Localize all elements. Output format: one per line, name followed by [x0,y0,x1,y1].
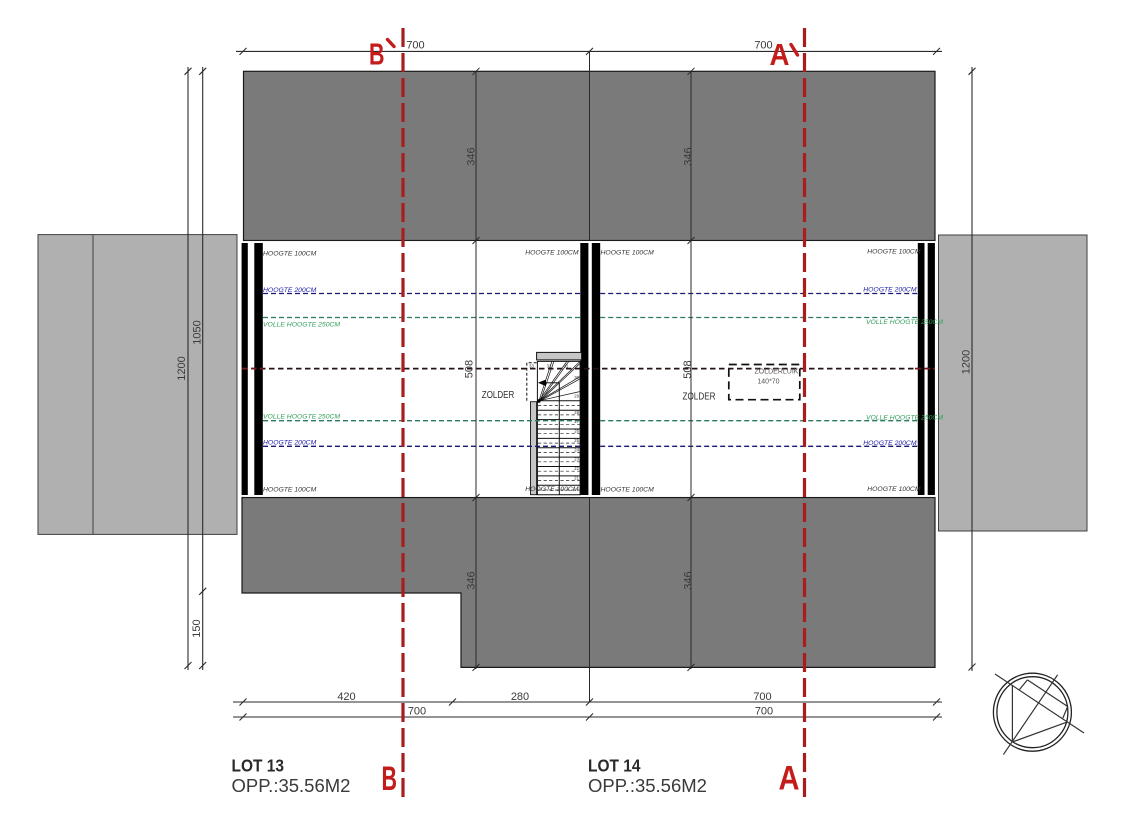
svg-text:ZOLDER: ZOLDER [683,392,716,403]
svg-text:140*70: 140*70 [757,378,779,385]
svg-text:B: B [369,37,385,72]
svg-text:21: 21 [574,476,579,481]
svg-text:A: A [770,37,790,72]
svg-text:HOOGTE 100CM: HOOGTE 100CM [525,486,579,493]
svg-text:346: 346 [682,147,694,165]
svg-text:700: 700 [406,40,424,52]
svg-text:HOOGTE 100CM: HOOGTE 100CM [525,250,579,257]
svg-text:HOOGTE 200CM: HOOGTE 200CM [263,439,317,446]
svg-text:HOOGTE 100CM: HOOGTE 100CM [601,487,655,494]
svg-text:HOOGTE 200CM: HOOGTE 200CM [863,287,917,294]
svg-text:26: 26 [574,429,579,434]
svg-text:HOOGTE 100CM: HOOGTE 100CM [263,251,317,258]
svg-text:1200: 1200 [961,350,973,374]
svg-text:27: 27 [574,419,579,424]
svg-text:24: 24 [574,447,579,452]
svg-text:OPP.:35.56M2: OPP.:35.56M2 [588,775,707,796]
svg-text:VOLLE HOOGTE 250CM: VOLLE HOOGTE 250CM [866,414,943,421]
svg-text:22: 22 [574,466,579,471]
svg-text:420: 420 [337,691,355,703]
svg-text:25: 25 [574,438,579,443]
svg-text:A: A [779,760,800,798]
svg-text:508: 508 [464,360,476,378]
svg-text:1050: 1050 [192,320,204,344]
svg-text:346: 346 [465,147,477,165]
svg-text:23: 23 [574,457,579,462]
svg-text:346: 346 [682,571,694,589]
svg-text:VOLLE HOOGTE 250CM: VOLLE HOOGTE 250CM [263,414,340,421]
svg-text:29: 29 [574,394,579,399]
svg-text:HOOGTE 100CM: HOOGTE 100CM [867,486,921,493]
svg-text:LOT 14: LOT 14 [588,756,641,776]
svg-text:HOOGTE 200CM: HOOGTE 200CM [863,440,917,447]
svg-text:30: 30 [574,375,579,380]
svg-text:1200: 1200 [176,356,188,380]
svg-text:VOLLE HOOGTE 250CM: VOLLE HOOGTE 250CM [866,319,943,326]
svg-text:150: 150 [191,619,203,637]
svg-text:B: B [382,760,398,798]
svg-text:ZOLDERLUIK: ZOLDERLUIK [755,369,799,376]
svg-text:ZOLDER: ZOLDER [482,390,515,401]
svg-text:HOOGTE 100CM: HOOGTE 100CM [601,250,655,257]
svg-text:HOOGTE 100CM: HOOGTE 100CM [867,249,921,256]
svg-text:346: 346 [466,571,478,589]
svg-text:700: 700 [408,706,426,718]
svg-text:280: 280 [511,691,529,703]
svg-text:VOLLE HOOGTE 250CM: VOLLE HOOGTE 250CM [263,322,340,329]
svg-text:HOOGTE 100CM: HOOGTE 100CM [263,486,317,493]
svg-text:OPP.:35.56M2: OPP.:35.56M2 [232,775,351,796]
svg-text:28: 28 [574,410,579,415]
svg-text:700: 700 [753,691,771,703]
svg-text:700: 700 [755,706,773,718]
svg-text:LOT 13: LOT 13 [232,756,285,776]
svg-text:HOOGTE 200CM: HOOGTE 200CM [263,287,317,294]
svg-text:508: 508 [682,360,694,378]
